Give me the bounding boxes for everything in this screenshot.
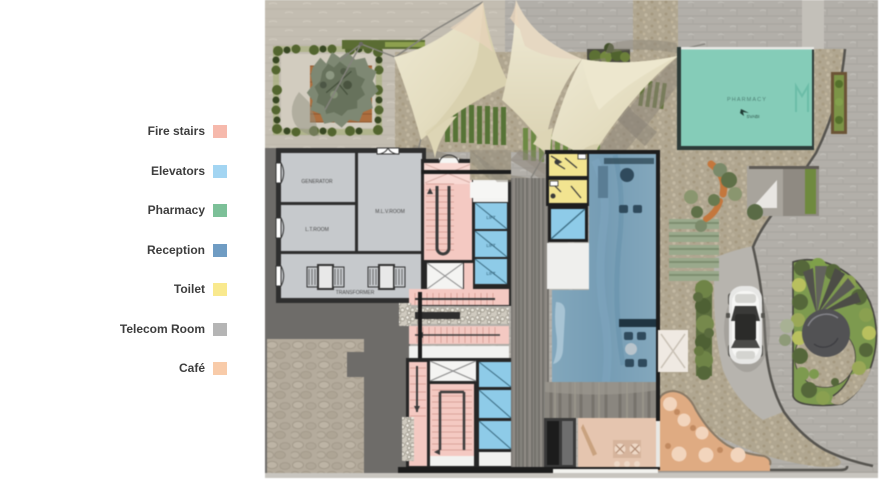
svg-text:TRANSFORMER: TRANSFORMER xyxy=(336,290,375,296)
svg-text:GENERATOR: GENERATOR xyxy=(301,179,333,185)
svg-text:LIFT: LIFT xyxy=(486,243,496,248)
svg-text:L.T.ROOM: L.T.ROOM xyxy=(305,227,329,233)
svg-text:LIFT: LIFT xyxy=(486,271,496,276)
svg-text:LIFT: LIFT xyxy=(486,215,496,220)
svg-text:PHARMACY: PHARMACY xyxy=(727,97,767,103)
svg-text:SVABI: SVABI xyxy=(747,114,760,119)
svg-text:M.L.V.ROOM: M.L.V.ROOM xyxy=(375,209,405,215)
